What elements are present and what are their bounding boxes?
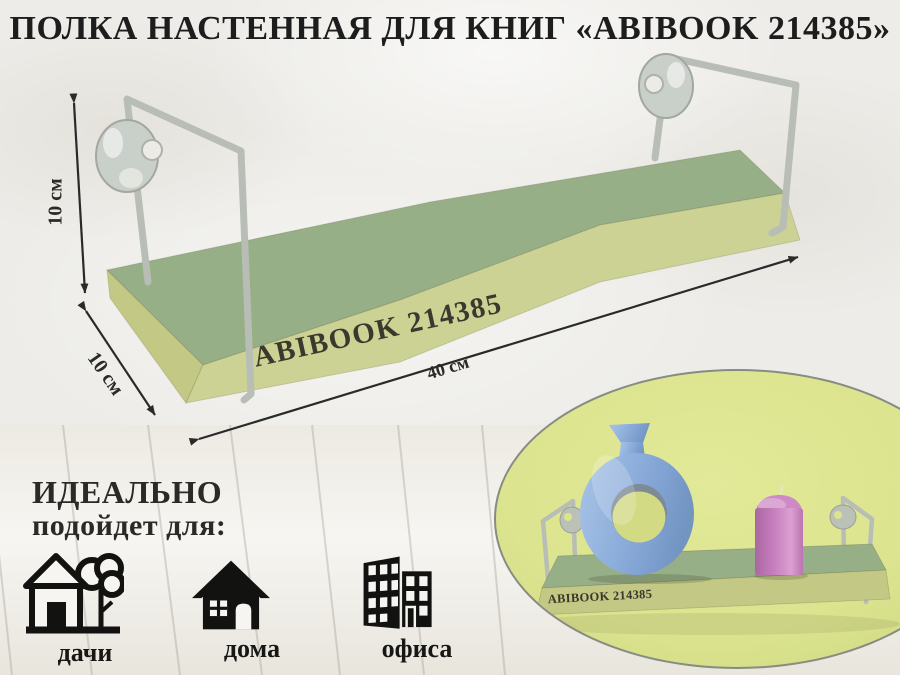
product-poster: { "header": { "title": "ПОЛКА НАСТЕННАЯ … — [0, 0, 900, 675]
ideal-heading-line2: подойдет для: — [32, 509, 226, 543]
house-icon — [192, 558, 312, 632]
use-item-office: офиса — [357, 550, 477, 664]
ideal-heading-line1: ИДЕАЛЬНО — [32, 474, 222, 511]
blue-vase — [580, 423, 694, 575]
dacha-house-tree-icon — [22, 550, 148, 636]
use-label-dacha: дачи — [22, 638, 148, 668]
use-label-home: дома — [192, 634, 312, 664]
use-item-home: дома — [192, 558, 312, 664]
pink-candle — [755, 485, 803, 575]
use-label-office: офиса — [357, 634, 477, 664]
height-dimension-label: 10 см — [45, 178, 68, 226]
right-mount-hole — [645, 75, 663, 93]
height-dimension-arrow — [74, 103, 85, 293]
candle-wick — [780, 485, 783, 496]
inset-shelf-shadow — [520, 613, 900, 635]
use-item-dacha: дачи — [22, 550, 148, 668]
inset-right-disc — [830, 505, 856, 529]
office-building-icon — [357, 550, 477, 632]
left-mount-hole — [142, 140, 162, 160]
page-title: ПОЛКА НАСТЕННАЯ ДЛЯ КНИГ «ABIBOOK 214385… — [0, 10, 900, 48]
